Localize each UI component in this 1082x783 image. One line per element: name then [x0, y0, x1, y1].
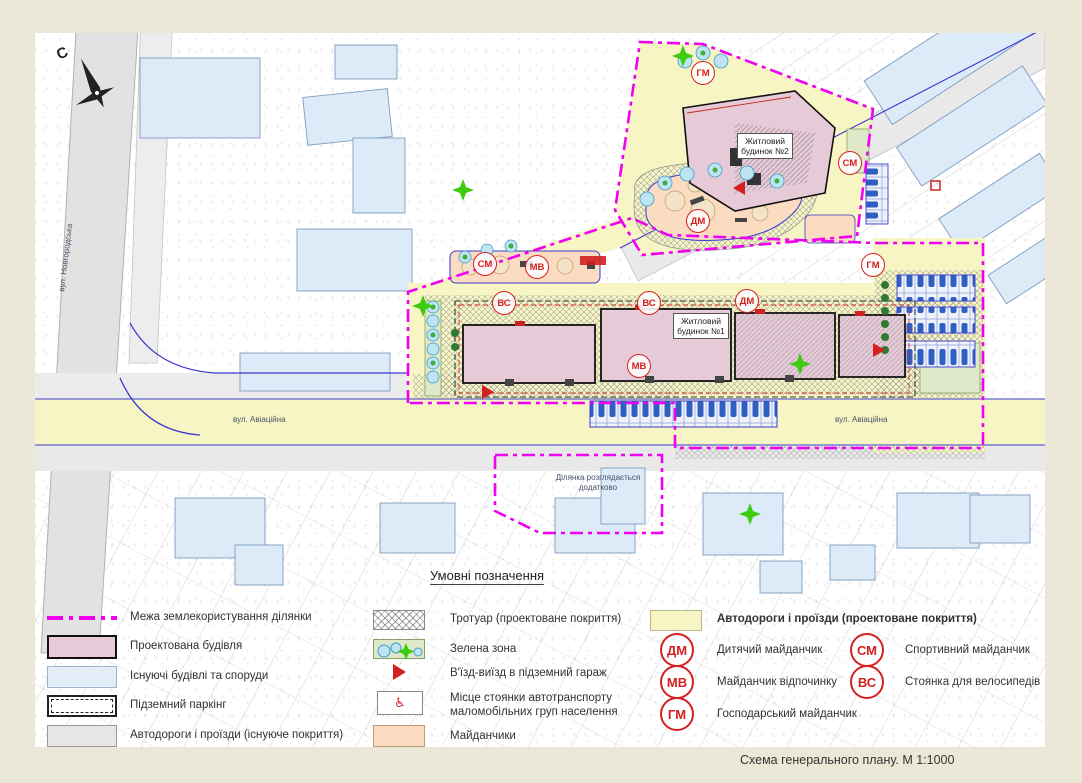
legend-swatch-projected-roads [650, 610, 702, 631]
map-badge-vs-2: ВС [637, 291, 661, 315]
building-label-house1: Житловий будинок №1 [673, 313, 729, 339]
legend-label-playgrounds: Майданчики [450, 730, 516, 742]
legend-badge-mv: МВ [660, 665, 694, 699]
legend-title: Умовні позначення [430, 568, 544, 585]
map-badge-mv-2: МВ [627, 354, 651, 378]
map-badge-mv: МВ [525, 255, 549, 279]
legend-disabled-parking-icon: ♿ [377, 691, 423, 715]
legend-label-projected-roads: Автодороги і проїзди (проектоване покрит… [717, 613, 977, 625]
legend-badge-vs-label: Стоянка для велосипедів [905, 676, 1040, 688]
legend-badge-gm-label: Господарський майданчик [717, 708, 857, 720]
legend-badge-dm-label: Дитячий майданчик [717, 644, 822, 656]
plan-sheet: С вул. Новгородська вул. Авіаційна вул. … [35, 33, 1045, 747]
map-badge-gm-2: ГМ [861, 253, 885, 277]
wheelchair-icon: ♿ [394, 695, 406, 711]
legend-badge-sm: СМ [850, 633, 884, 667]
legend-badge-dm: ДМ [660, 633, 694, 667]
legend-label-garage-entrance: В'їзд-виїзд в підземний гараж [450, 667, 607, 679]
legend-label-underground-parking: Підземний паркінг [130, 699, 227, 711]
sheet-caption: Схема генерального плану. М 1:1000 [740, 753, 1060, 767]
legend-swatch-existing-buildings [47, 666, 117, 688]
legend-garage-entrance-icon [393, 664, 406, 680]
legend-label-green-zone: Зелена зона [450, 643, 516, 655]
legend-swatch-underground-parking [47, 695, 117, 717]
legend-label-boundary: Межа землекористування ділянки [130, 611, 312, 623]
legend-label-existing-buildings: Існуючі будівлі та споруди [130, 670, 268, 682]
legend-badge-sm-label: Спортивний майданчик [905, 644, 1030, 656]
legend-swatch-boundary [47, 616, 117, 620]
legend-label-existing-roads: Автодороги і проїзди (існуюче покриття) [130, 729, 343, 741]
legend-badge-mv-label: Майданчик відпочинку [717, 676, 837, 688]
legend-label-sidewalk: Тротуар (проектоване покриття) [450, 613, 621, 625]
legend-label-projected-building: Проектована будівля [130, 640, 242, 652]
map-badge-sm-upper: СМ [838, 151, 862, 175]
legend-badge-vs: ВС [850, 665, 884, 699]
legend-swatch-projected-building [47, 635, 117, 659]
legend-swatch-green-zone [373, 639, 425, 659]
legend-swatch-playgrounds [373, 725, 425, 747]
street-label-aviatsiina-left: вул. Авіаційна [233, 415, 286, 424]
genplan-sheet: { "page": { "caption": "Схема генерально… [0, 0, 1082, 783]
building-label-house2: Житловий будинок №2 [737, 133, 793, 159]
map-badge-sm: СМ [473, 252, 497, 276]
legend-label-disabled-parking: Місце стоянки автотранспорту маломобільн… [450, 691, 665, 720]
map-badge-gm-upper: ГМ [691, 61, 715, 85]
legend-swatch-existing-roads [47, 725, 117, 747]
extra-parcel-note: Ділянка розглядається додатково [548, 473, 648, 492]
legend-badge-gm: ГМ [660, 697, 694, 731]
map-badge-vs-1: ВС [492, 291, 516, 315]
green-zone-trees-icon [374, 640, 426, 660]
map-badge-dm-2: ДМ [735, 289, 759, 313]
street-label-aviatsiina-right: вул. Авіаційна [835, 415, 888, 424]
map-badge-dm: ДМ [686, 209, 710, 233]
legend-swatch-sidewalk [373, 610, 425, 630]
